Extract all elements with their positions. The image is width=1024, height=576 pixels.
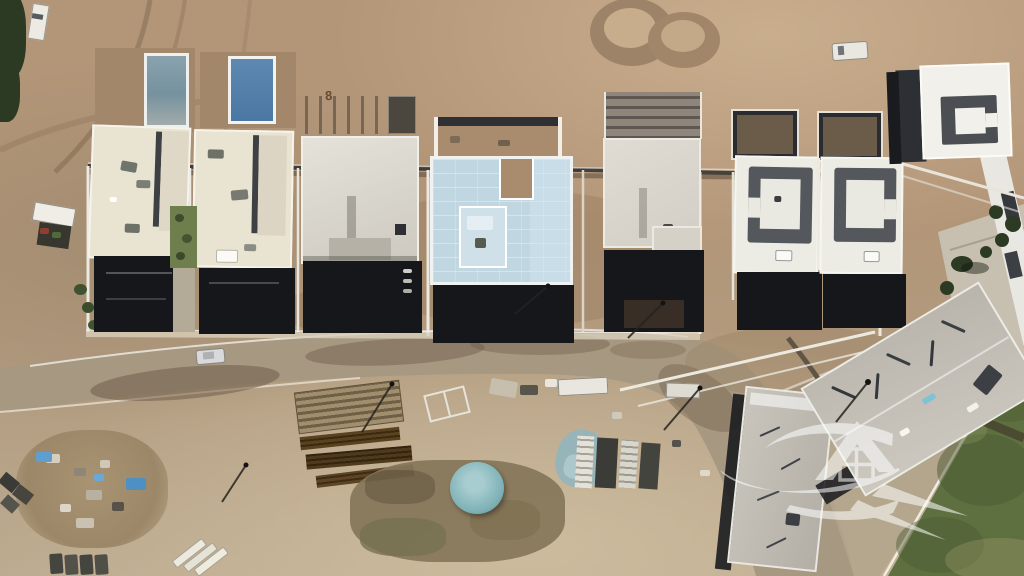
aerial-photo-construction-site: 8 [0, 0, 1024, 576]
watermark-logo [720, 421, 968, 540]
watermark-layer [0, 0, 1024, 576]
